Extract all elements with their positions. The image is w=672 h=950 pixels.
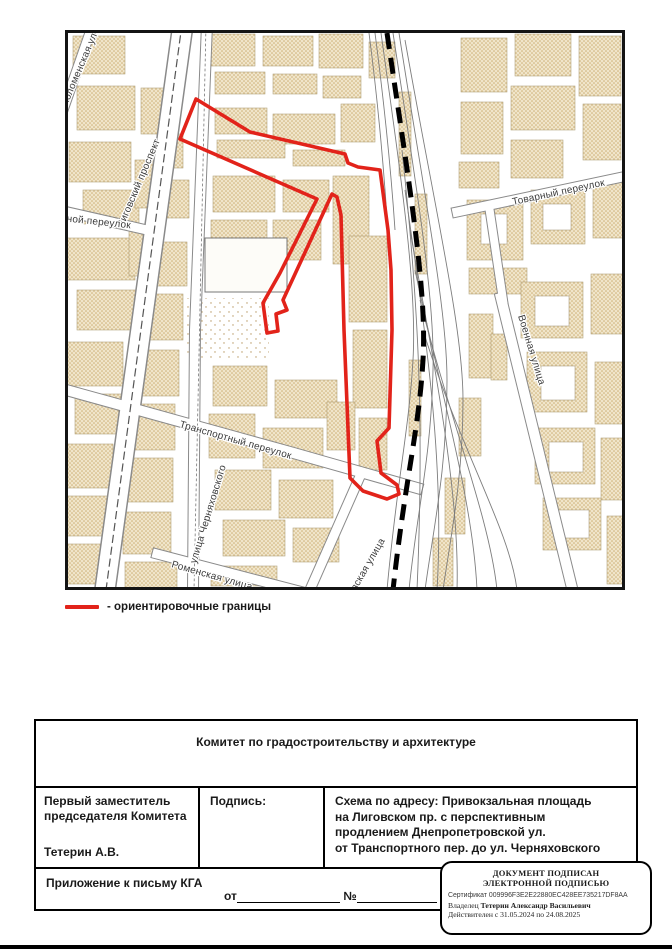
signature-stamp: ДОКУМЕНТ ПОДПИСАН ЭЛЕКТРОННОЙ ПОДПИСЬЮ С… [440,861,652,935]
attachment-label: Приложение к письму КГА [46,876,202,890]
official-title-line2: председателя Комитета [44,809,190,824]
table-main-row: Первый заместитель председателя Комитета… [36,788,636,869]
legend-label: - ориентировочные границы [107,601,271,613]
committee-title: Комитет по градостроительству и архитект… [196,735,476,749]
map-canvas: Коломенская ул Лиговский проспект чной п… [65,30,625,590]
document-page: { "map": { "streets": [ {"name": "Коломе… [0,0,672,950]
official-name: Тетерин А.В. [44,845,119,860]
stamp-title-line2: ЭЛЕКТРОННОЙ ПОДПИСЬЮ [442,878,650,888]
scheme-line: от Транспортного пер. до ул. Черняховско… [335,841,626,857]
from-label: от [224,889,237,903]
legend-boundary-line [65,605,99,609]
date-number-line: от № [224,889,437,903]
stamp-owner: Владелец Тетерин Александр Васильевич [448,901,644,911]
page-bottom-edge [0,945,672,949]
scheme-line: на Лиговском пр. с перспективным [335,810,626,826]
legend: - ориентировочные границы [65,599,271,615]
signature-label: Подпись: [210,794,266,808]
table-header-row: Комитет по градостроительству и архитект… [36,721,636,788]
signature-cell: Подпись: [200,788,325,867]
stamp-title-line1: ДОКУМЕНТ ПОДПИСАН [442,868,650,878]
stamp-certificate: Сертификат 009996F3E2E22880EC428EE735217… [448,891,644,901]
official-title-line1: Первый заместитель [44,794,190,809]
date-blank-line [237,891,340,903]
scheme-line: Схема по адресу: Привокзальная площадь [335,794,626,810]
scheme-address-cell: Схема по адресу: Привокзальная площадь н… [325,788,636,867]
number-blank-line [357,891,437,903]
number-label: № [343,889,356,903]
stamp-validity: Действителен с 31.05.2024 по 24.08.2025 [448,910,644,920]
stamp-owner-name: Тетерин Александр Васильевич [481,901,591,910]
city-plan-map: Коломенская ул Лиговский проспект чной п… [65,30,625,590]
official-cell: Первый заместитель председателя Комитета… [36,788,200,867]
scheme-line: продлением Днепропетровской ул. [335,825,626,841]
